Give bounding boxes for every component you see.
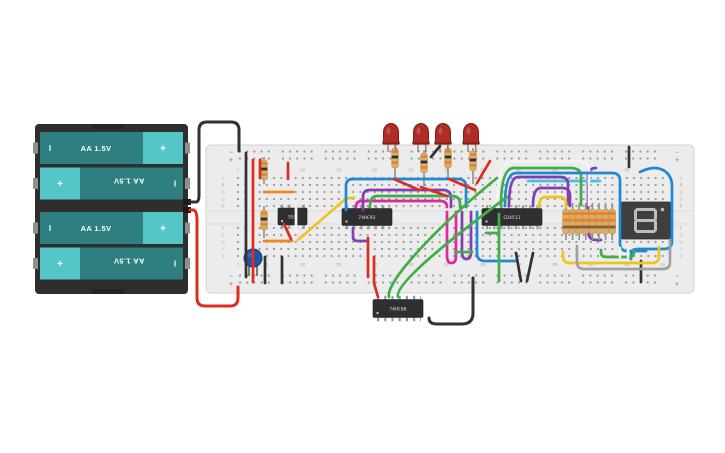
row-label: J bbox=[222, 254, 224, 259]
row-label: D bbox=[221, 197, 224, 202]
resistor-band bbox=[563, 219, 570, 222]
resistor-band bbox=[589, 226, 596, 229]
resistor-band bbox=[609, 219, 616, 222]
resistor-band bbox=[602, 219, 609, 222]
row-label: J bbox=[680, 254, 682, 259]
battery-plus-mark: + bbox=[160, 144, 166, 155]
resistor-band bbox=[261, 162, 268, 165]
row-label: H bbox=[221, 240, 224, 245]
column-number: 15 bbox=[336, 168, 341, 173]
rail-plus-bottom-right: + bbox=[675, 282, 679, 288]
row-label: E bbox=[222, 204, 225, 209]
battery-cell-1: I AA 1.5V + bbox=[40, 132, 183, 164]
rail-minus-bottom-right: − bbox=[675, 274, 679, 280]
ic-pin1-dot bbox=[376, 312, 378, 314]
column-number: 25 bbox=[408, 168, 413, 173]
battery-minus-mark: I bbox=[49, 144, 51, 153]
row-label: I bbox=[222, 247, 223, 252]
row-label: C bbox=[221, 190, 224, 195]
battery-plus-mark: + bbox=[57, 179, 63, 190]
row-label: I bbox=[680, 247, 681, 252]
led-body bbox=[436, 124, 451, 143]
row-label: A bbox=[680, 176, 683, 181]
resistor-band bbox=[421, 161, 428, 164]
resistor-band bbox=[609, 226, 616, 229]
resistor-band bbox=[569, 219, 576, 222]
row-label: E bbox=[680, 204, 683, 209]
resistor-band bbox=[470, 153, 477, 156]
resistor-band bbox=[596, 212, 603, 215]
ic-label: 74HC08 bbox=[389, 306, 406, 312]
resistor-band bbox=[602, 226, 609, 229]
rail-minus-bottom-left: − bbox=[229, 274, 233, 280]
resistor-band bbox=[576, 212, 583, 215]
resistor-band bbox=[609, 212, 616, 215]
resistor-band bbox=[596, 226, 603, 229]
resistor-band bbox=[470, 159, 477, 162]
resistor-band bbox=[583, 219, 590, 222]
column-number: 10 bbox=[300, 262, 305, 267]
resistor-band bbox=[261, 218, 268, 221]
battery-pack[interactable]: I AA 1.5V + + AA 1.5V I I AA 1.5V + + AA… bbox=[33, 124, 191, 294]
row-label: B bbox=[222, 183, 225, 188]
battery-minus-mark: I bbox=[49, 224, 51, 233]
resistor-band bbox=[569, 212, 576, 215]
circuit-scene[interactable]: I AA 1.5V + + AA 1.5V I I AA 1.5V + + AA… bbox=[0, 0, 725, 453]
battery-cell-3: I AA 1.5V + bbox=[40, 212, 183, 244]
resistor-band bbox=[421, 166, 428, 169]
holder-notch-top bbox=[92, 124, 124, 129]
row-label: C bbox=[679, 190, 682, 195]
battery-label: AA 1.5V bbox=[114, 257, 145, 266]
led-body bbox=[384, 124, 399, 143]
resistor-band bbox=[261, 168, 268, 171]
resistor-band bbox=[445, 161, 452, 164]
rail-minus-top-right: − bbox=[675, 150, 679, 156]
resistor-band bbox=[602, 212, 609, 215]
ic-74hc93-counter[interactable]: 74HC93 bbox=[342, 207, 392, 228]
resistor-band bbox=[445, 156, 452, 159]
resistor-band bbox=[576, 219, 583, 222]
row-label: B bbox=[680, 183, 683, 188]
resistor-band bbox=[261, 212, 268, 215]
battery-minus-mark: I bbox=[174, 180, 176, 189]
rail-plus-top-right: + bbox=[675, 158, 679, 164]
resistor-band bbox=[392, 161, 399, 164]
column-number: 45 bbox=[552, 262, 557, 267]
column-number: 35 bbox=[480, 262, 485, 267]
resistor-band bbox=[261, 223, 268, 226]
ic-pin1-dot bbox=[345, 220, 347, 222]
seven-segment-display[interactable] bbox=[621, 202, 671, 239]
resistor-band bbox=[589, 219, 596, 222]
resistor-band bbox=[576, 226, 583, 229]
resistor-band bbox=[583, 226, 590, 229]
ic-555-timer[interactable]: 555 bbox=[278, 207, 307, 228]
ic-74hc08-and-gate[interactable]: 74HC08 bbox=[373, 298, 423, 320]
holder-notch-bottom bbox=[92, 289, 124, 294]
led-highlight bbox=[439, 128, 443, 135]
led-highlight bbox=[387, 128, 391, 135]
battery-label: AA 1.5V bbox=[81, 144, 112, 153]
display-decimal-point bbox=[661, 208, 665, 212]
ic-label: CD4511 bbox=[503, 215, 520, 221]
led-highlight bbox=[417, 128, 421, 135]
led-body bbox=[414, 124, 429, 143]
row-label: D bbox=[679, 197, 682, 202]
battery-cell-2: + AA 1.5V I bbox=[40, 168, 183, 200]
battery-plus-mark: + bbox=[57, 259, 63, 270]
row-label: H bbox=[679, 240, 682, 245]
column-number: 10 bbox=[300, 168, 305, 173]
column-number: 15 bbox=[336, 262, 341, 267]
resistor-band bbox=[589, 212, 596, 215]
resistor-band bbox=[470, 164, 477, 167]
battery-minus-mark: I bbox=[174, 260, 176, 269]
resistor-band bbox=[563, 212, 570, 215]
rail-plus-bottom-left: + bbox=[229, 282, 233, 288]
row-label: A bbox=[222, 176, 225, 181]
column-number: 20 bbox=[372, 168, 377, 173]
led-highlight bbox=[467, 128, 471, 135]
rail-minus-top-left: − bbox=[229, 150, 233, 156]
resistor-band bbox=[392, 156, 399, 159]
battery-plus-mark: + bbox=[160, 224, 166, 235]
resistor-band bbox=[563, 226, 570, 229]
resistor-band bbox=[569, 226, 576, 229]
resistor-band bbox=[596, 219, 603, 222]
ic-pin1-dot bbox=[281, 220, 283, 222]
row-label: F bbox=[222, 226, 225, 231]
battery-label: AA 1.5V bbox=[114, 177, 145, 186]
ic-label: 74HC93 bbox=[358, 215, 375, 221]
row-label: F bbox=[680, 226, 683, 231]
circuit-design-canvas[interactable]: I AA 1.5V + + AA 1.5V I I AA 1.5V + + AA… bbox=[0, 0, 725, 453]
ic-pin1-dot bbox=[485, 220, 487, 222]
battery-cell-4: + AA 1.5V I bbox=[40, 248, 183, 280]
resistor-band bbox=[392, 150, 399, 153]
rail-plus-top-left: + bbox=[229, 158, 233, 164]
battery-label: AA 1.5V bbox=[81, 224, 112, 233]
column-number: 60 bbox=[660, 262, 665, 267]
led-body bbox=[464, 124, 479, 143]
resistor-band bbox=[583, 212, 590, 215]
resistor-band bbox=[421, 155, 428, 158]
resistor-band bbox=[261, 173, 268, 176]
